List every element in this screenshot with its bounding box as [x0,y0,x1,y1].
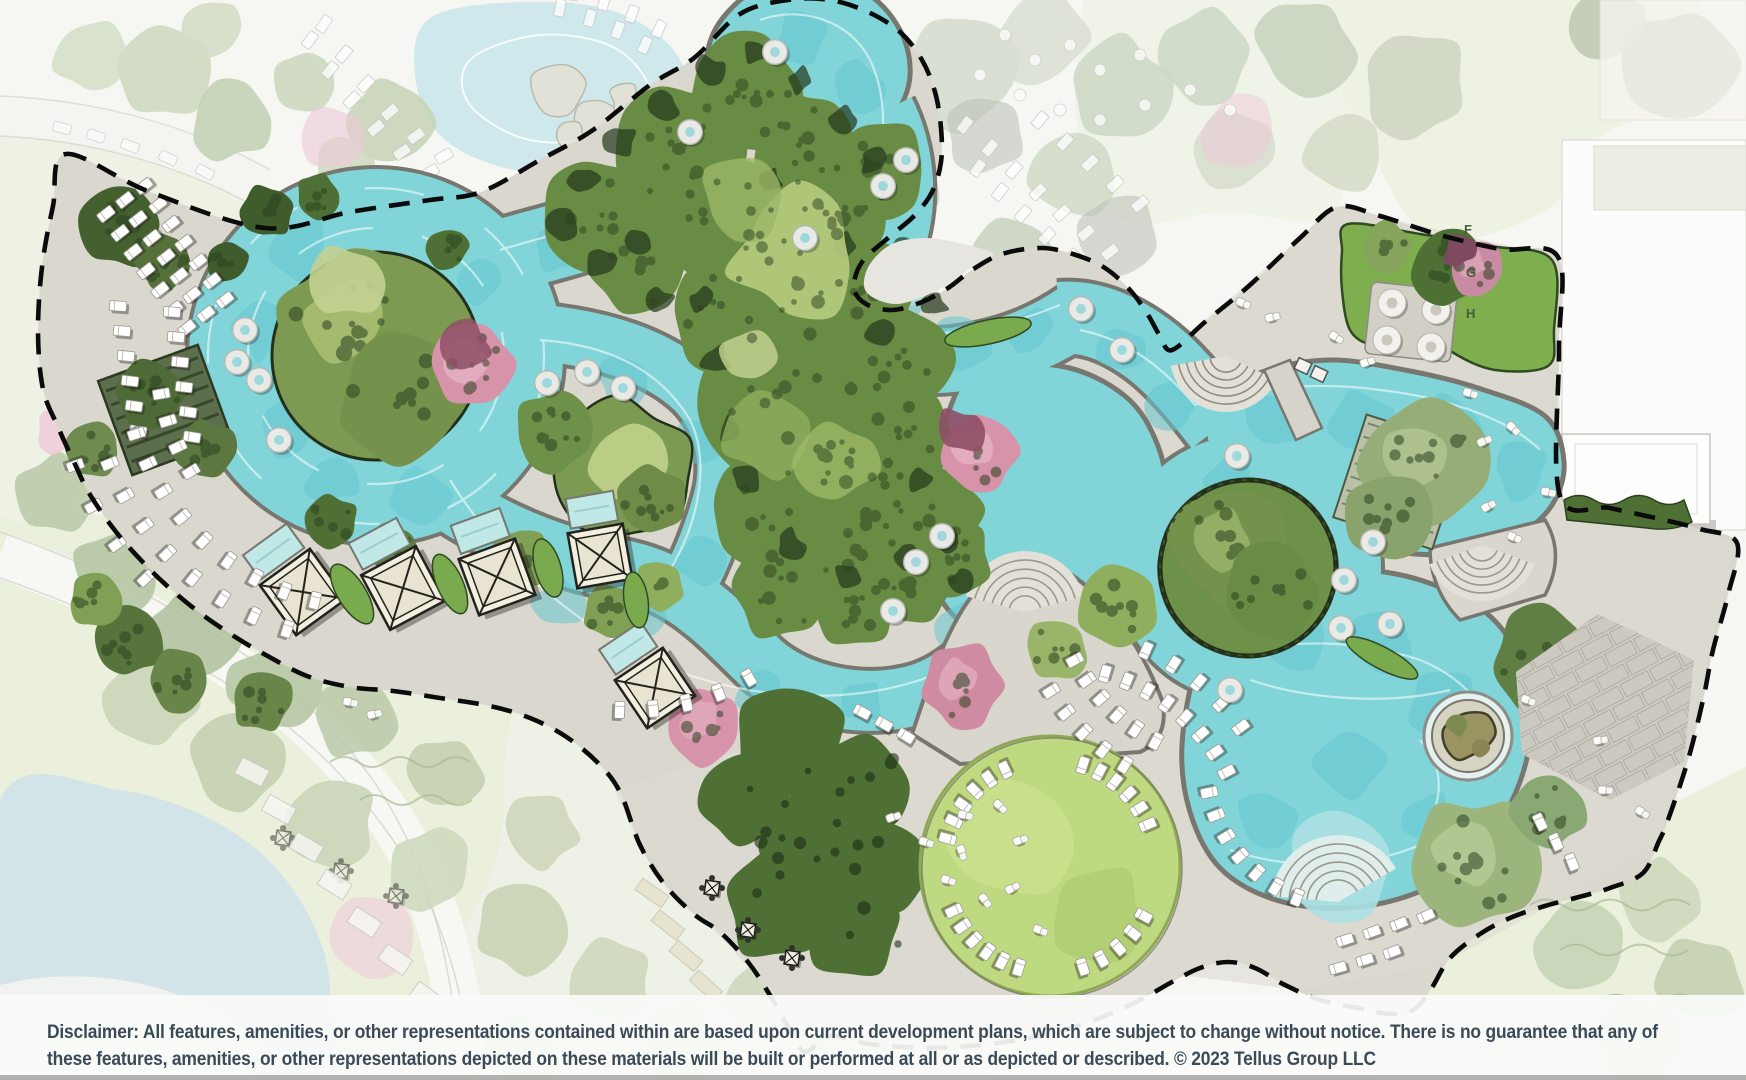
svg-text:H: H [1466,306,1475,321]
svg-text:F: F [1464,222,1472,237]
svg-text:G: G [1466,265,1476,280]
